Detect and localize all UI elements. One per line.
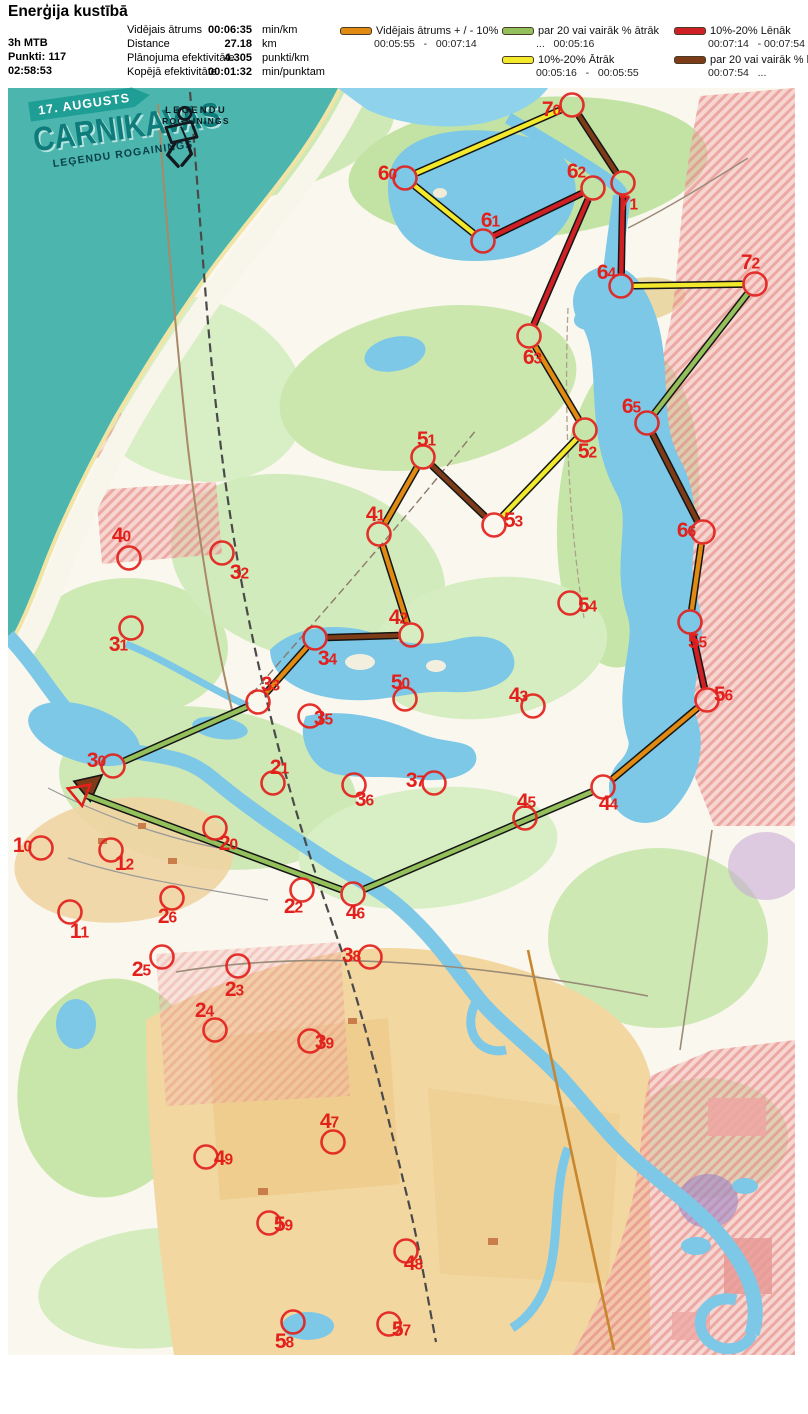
legend-column-3: 10%-20% Lēnāk 00:07:14 - 00:07:54 par 20…: [674, 24, 808, 82]
event-class: 3h MTB: [8, 37, 48, 49]
event-time: 02:58:53: [8, 65, 52, 77]
legend-swatch-fast10-icon: [502, 56, 534, 64]
legend-column-1: Vidējais ātrums + / - 10% 00:05:55 - 00:…: [340, 24, 498, 53]
legend-swatch-slow20-icon: [674, 56, 706, 64]
runner-with-map-icon: [152, 104, 210, 170]
stat-unit: min/km: [262, 24, 297, 36]
legend-entry-fast20: par 20 vai vairāk % ātrāk ... 00:05:16: [502, 24, 659, 50]
legend-entry-fast10: 10%-20% Ātrāk 00:05:16 - 00:05:55: [502, 53, 659, 79]
legend-swatch-avg-icon: [340, 27, 372, 35]
legend-entry-avg: Vidējais ātrums + / - 10% 00:05:55 - 00:…: [340, 24, 498, 50]
map-canvas: 7060616271647263526551536654555640323141…: [8, 88, 795, 1355]
legend-entry-slow10: 10%-20% Lēnāk 00:07:14 - 00:07:54: [674, 24, 808, 50]
page: Enerģija kustībā 3h MTB Punkti: 117 02:5…: [0, 0, 808, 1414]
page-title: Enerģija kustībā: [8, 3, 128, 21]
event-points: Punkti: 117: [8, 51, 66, 63]
stat-value: 4.305: [184, 52, 252, 64]
stat-unit: min/punktam: [262, 66, 325, 78]
stat-label: Distance: [127, 38, 170, 50]
stat-unit: punkti/km: [262, 52, 309, 64]
stat-unit: km: [262, 38, 277, 50]
legend-swatch-slow10-icon: [674, 27, 706, 35]
route-leg-34-42: [327, 635, 398, 637]
legend-swatch-fast20-icon: [502, 27, 534, 35]
stat-value: 27.18: [184, 38, 252, 50]
event-logo: LEĢENDU ROGAININGS: [152, 104, 240, 126]
stat-value: 00:06:35: [184, 24, 252, 36]
legend-column-2: par 20 vai vairāk % ātrāk ... 00:05:16 1…: [502, 24, 659, 82]
legend-entry-slow20: par 20 vai vairāk % lēnāk 00:07:54 ...: [674, 53, 808, 79]
orienteering-map: 7060616271647263526551536654555640323141…: [8, 88, 795, 1355]
route-leg-64-72: [633, 284, 742, 286]
